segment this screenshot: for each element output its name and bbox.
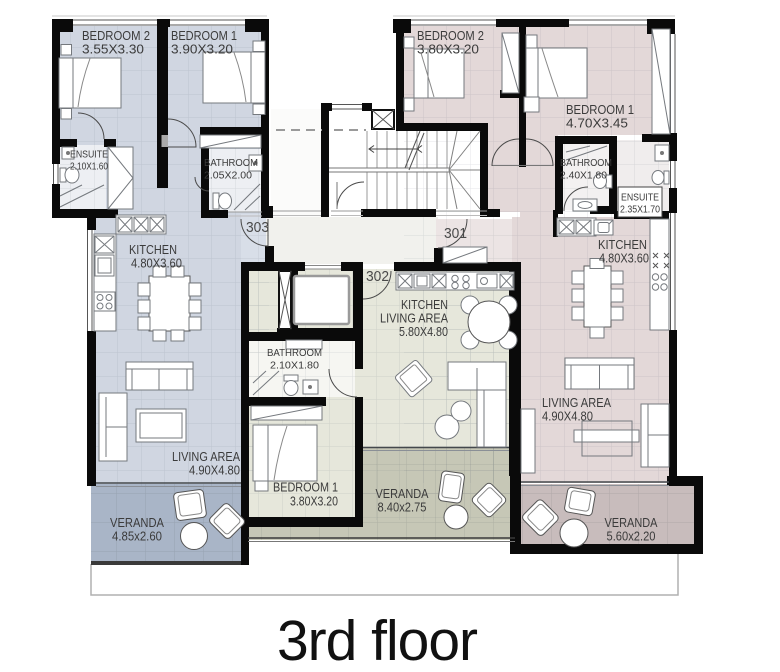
svg-text:KITCHEN: KITCHEN [598,238,647,252]
svg-text:BEDROOM 2: BEDROOM 2 [82,29,150,43]
svg-text:KITCHEN: KITCHEN [401,298,448,312]
svg-text:2.35X1.70: 2.35X1.70 [620,205,661,216]
svg-text:LIVING AREA: LIVING AREA [380,312,449,326]
svg-text:BEDROOM 1: BEDROOM 1 [273,481,338,495]
svg-text:8.40x2.75: 8.40x2.75 [378,501,427,515]
svg-text:BATHROOM: BATHROOM [204,158,258,169]
svg-text:VERANDA: VERANDA [376,487,430,501]
svg-text:ENSUITE: ENSUITE [621,193,659,204]
svg-text:2.05X2.00: 2.05X2.00 [204,171,252,182]
svg-text:4.90X4.80: 4.90X4.80 [542,410,593,424]
svg-text:303: 303 [246,220,269,236]
svg-text:BEDROOM 2: BEDROOM 2 [417,29,484,43]
svg-text:4.70X3.45: 4.70X3.45 [566,117,628,131]
svg-text:3rd floor: 3rd floor [277,609,478,672]
svg-text:4.85x2.60: 4.85x2.60 [112,530,162,544]
svg-text:BEDROOM 1: BEDROOM 1 [566,103,634,117]
svg-text:5.80X4.80: 5.80X4.80 [399,325,448,339]
svg-text:302: 302 [366,269,389,285]
svg-text:4.80X3.60: 4.80X3.60 [131,257,182,271]
svg-text:4.80X3.60: 4.80X3.60 [599,252,649,266]
svg-text:3.80X3.20: 3.80X3.20 [417,43,479,57]
svg-text:301: 301 [444,226,467,242]
svg-text:2.10X1.80: 2.10X1.80 [270,361,319,372]
svg-text:2.40X1.80: 2.40X1.80 [560,171,607,182]
svg-text:LIVING AREA: LIVING AREA [542,396,612,410]
svg-text:BATHROOM: BATHROOM [267,348,322,359]
svg-text:LIVING AREA: LIVING AREA [172,450,241,464]
svg-text:2.10X1.60: 2.10X1.60 [70,162,109,173]
svg-text:KITCHEN: KITCHEN [129,243,177,257]
svg-text:3.55X3.30: 3.55X3.30 [82,43,144,57]
svg-text:3.90X3.20: 3.90X3.20 [171,43,233,57]
svg-text:VERANDA: VERANDA [110,516,165,530]
svg-text:3.80X3.20: 3.80X3.20 [290,495,338,509]
svg-text:ENSUITE: ENSUITE [70,150,108,161]
svg-text:5.60x2.20: 5.60x2.20 [607,530,656,544]
svg-text:VERANDA: VERANDA [605,516,659,530]
svg-text:BATHROOM: BATHROOM [560,158,612,169]
svg-text:BEDROOM 1: BEDROOM 1 [171,29,237,43]
svg-text:4.90X4.80: 4.90X4.80 [189,464,240,478]
